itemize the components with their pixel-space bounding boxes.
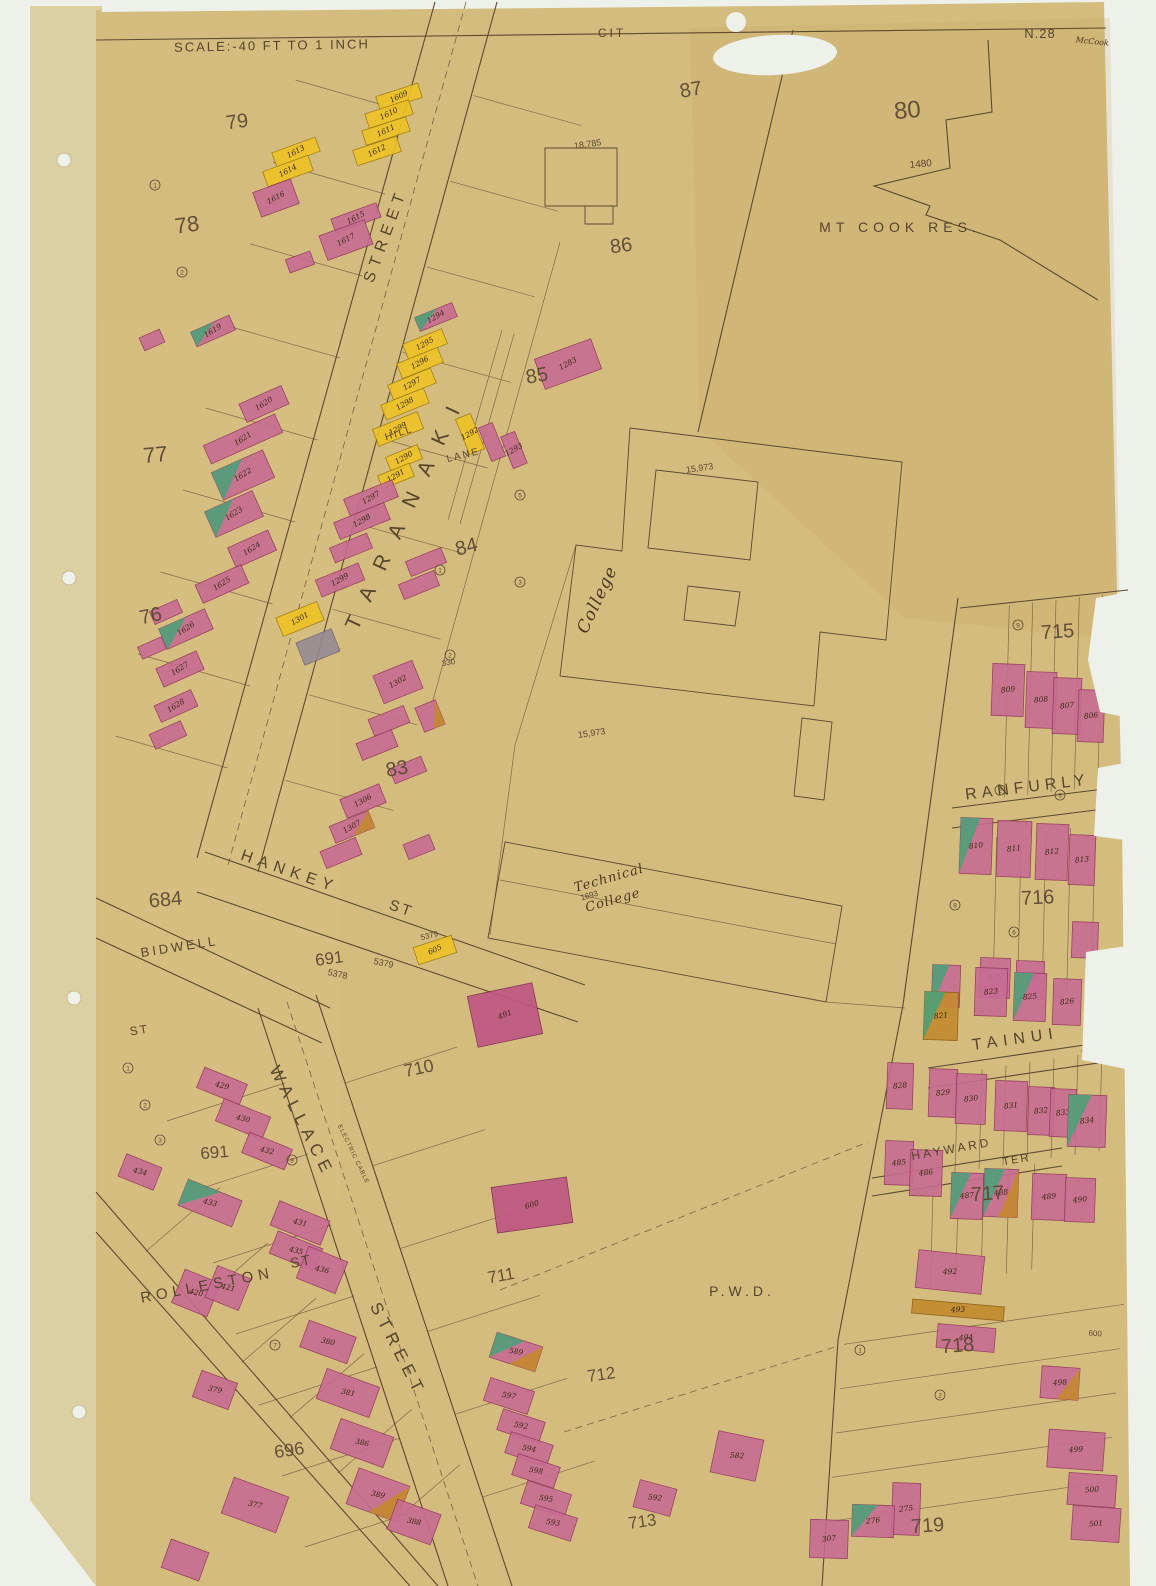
building: 809 <box>991 663 1025 716</box>
lot-circle-number: 3 <box>1058 792 1062 799</box>
building: 499 <box>1047 1429 1106 1471</box>
torn-edge <box>1082 944 1140 1072</box>
punch-hole <box>62 571 76 585</box>
block-number: 87 <box>678 77 704 103</box>
building-number: 498 <box>1052 1377 1068 1387</box>
building-number: 821 <box>933 1010 948 1020</box>
building-number: 823 <box>983 986 998 996</box>
building: 489 <box>1031 1173 1067 1220</box>
lot-circle-number: 1 <box>438 567 442 574</box>
building: 490 <box>1064 1177 1096 1222</box>
lot-circle-number: 3 <box>518 579 522 586</box>
block-number: 86 <box>609 234 634 259</box>
building-number: 486 <box>917 1167 933 1178</box>
building: 811 <box>996 820 1032 877</box>
building: 582 <box>710 1431 764 1482</box>
building-number: 499 <box>1068 1444 1084 1454</box>
building-number: 806 <box>1083 710 1098 720</box>
block-number: 80 <box>893 96 922 125</box>
building-number: 307 <box>821 1533 836 1543</box>
block-number: 712 <box>586 1363 617 1386</box>
map-sheet: 1609161016111612161316141616161516171619… <box>0 0 1156 1586</box>
building-number: 807 <box>1059 700 1074 710</box>
lot-circle-number: 8 <box>953 902 957 909</box>
lot-circle-number: 2 <box>938 1392 942 1399</box>
block-number: 78 <box>173 210 201 238</box>
erased-patch <box>726 12 746 32</box>
building-number: 485 <box>890 1157 906 1168</box>
block-number: 691 <box>200 1142 230 1163</box>
building-number: 811 <box>1006 843 1021 853</box>
block-number: 83 <box>384 756 410 782</box>
building: 823 <box>974 967 1008 1016</box>
block-number: 79 <box>225 110 250 135</box>
building-number: 831 <box>1003 1100 1018 1110</box>
building: 828 <box>886 1063 914 1110</box>
torn-edge <box>1094 760 1140 842</box>
street-name-bidwell-st: ST <box>129 1022 150 1039</box>
building: 829 <box>928 1069 958 1118</box>
sheet-number: N.28 <box>1024 26 1055 41</box>
lot-circle-number: 3 <box>158 1137 162 1144</box>
building-number: 812 <box>1044 846 1059 856</box>
building: 825 <box>1013 972 1047 1021</box>
building: 821 <box>923 991 959 1040</box>
building: 826 <box>1052 979 1082 1026</box>
building: 498 <box>1040 1366 1080 1401</box>
block-number: 715 <box>1040 620 1075 644</box>
binding-strip <box>30 6 102 1586</box>
building-number: 830 <box>963 1093 978 1103</box>
building-number: 826 <box>1059 996 1074 1006</box>
building: 812 <box>1035 823 1069 880</box>
punch-hole <box>57 153 71 167</box>
block-number: 718 <box>940 1334 975 1358</box>
lot-circle-number: 1 <box>153 182 157 189</box>
block-number: 716 <box>1020 886 1054 910</box>
building: 834 <box>1067 1094 1107 1147</box>
lot-circle-number: 5 <box>518 492 522 499</box>
building: 485 <box>884 1141 914 1186</box>
building-number: 810 <box>968 840 983 850</box>
map-canvas: 1609161016111612161316141616161516171619… <box>0 0 1156 1586</box>
block-number: 719 <box>910 1514 945 1538</box>
building-number: 813 <box>1074 854 1089 864</box>
lot-circle-number: 8 <box>290 1157 294 1164</box>
lot-circle-number: 2 <box>143 1102 147 1109</box>
block-number: 717 <box>970 1182 1005 1206</box>
building: 831 <box>994 1080 1028 1131</box>
building-number: 501 <box>1089 1519 1104 1529</box>
building-number: 582 <box>730 1451 745 1461</box>
reference-number: 600 <box>1088 1329 1102 1339</box>
building-number: 829 <box>935 1087 950 1097</box>
building: 813 <box>1068 835 1096 886</box>
building-number: 828 <box>892 1080 907 1090</box>
landmark-pwd: P.W.D. <box>709 1283 775 1299</box>
building: 500 <box>1067 1472 1117 1507</box>
lot-circle-number: 1 <box>858 1347 862 1354</box>
building: 276 <box>851 1504 894 1537</box>
building-number: 834 <box>1079 1115 1094 1125</box>
punch-hole <box>72 1405 86 1419</box>
block-number: 696 <box>273 1438 306 1462</box>
building-number: 500 <box>1085 1484 1100 1494</box>
building-number: 825 <box>1022 991 1037 1001</box>
building: 307 <box>809 1519 848 1558</box>
building-number: 275 <box>897 1503 913 1514</box>
building: 492 <box>915 1250 985 1295</box>
city-label: CIT <box>598 26 626 40</box>
building-number: 489 <box>1040 1191 1056 1202</box>
lot-circle-number: 7 <box>273 1342 277 1349</box>
landmark-mt-cook-res: MT COOK RES. <box>819 219 981 235</box>
building: 830 <box>955 1073 987 1124</box>
lot-circle-number: 9 <box>1016 622 1020 629</box>
building-number: 490 <box>1071 1194 1087 1205</box>
block-number: 85 <box>524 363 550 389</box>
block-number: 713 <box>627 1510 658 1533</box>
building: 501 <box>1071 1505 1121 1542</box>
reference-number: 1480 <box>909 158 933 171</box>
building-number: 809 <box>1000 684 1015 694</box>
lot-circle-number: 1 <box>126 1065 130 1072</box>
building-number: 592 <box>647 1492 663 1503</box>
building-number: 492 <box>942 1267 958 1277</box>
building: 810 <box>959 817 993 874</box>
building-number: 832 <box>1033 1105 1048 1115</box>
punch-hole <box>67 991 81 1005</box>
block-number: 76 <box>138 603 164 629</box>
building-number: 276 <box>864 1515 880 1526</box>
block-number: 77 <box>142 441 169 468</box>
block-number: 684 <box>148 888 183 913</box>
lot-circle-number: 2 <box>180 269 184 276</box>
building-number: 808 <box>1033 694 1048 704</box>
building-number: 493 <box>950 1305 966 1315</box>
lot-circle-number: 6 <box>1012 929 1016 936</box>
